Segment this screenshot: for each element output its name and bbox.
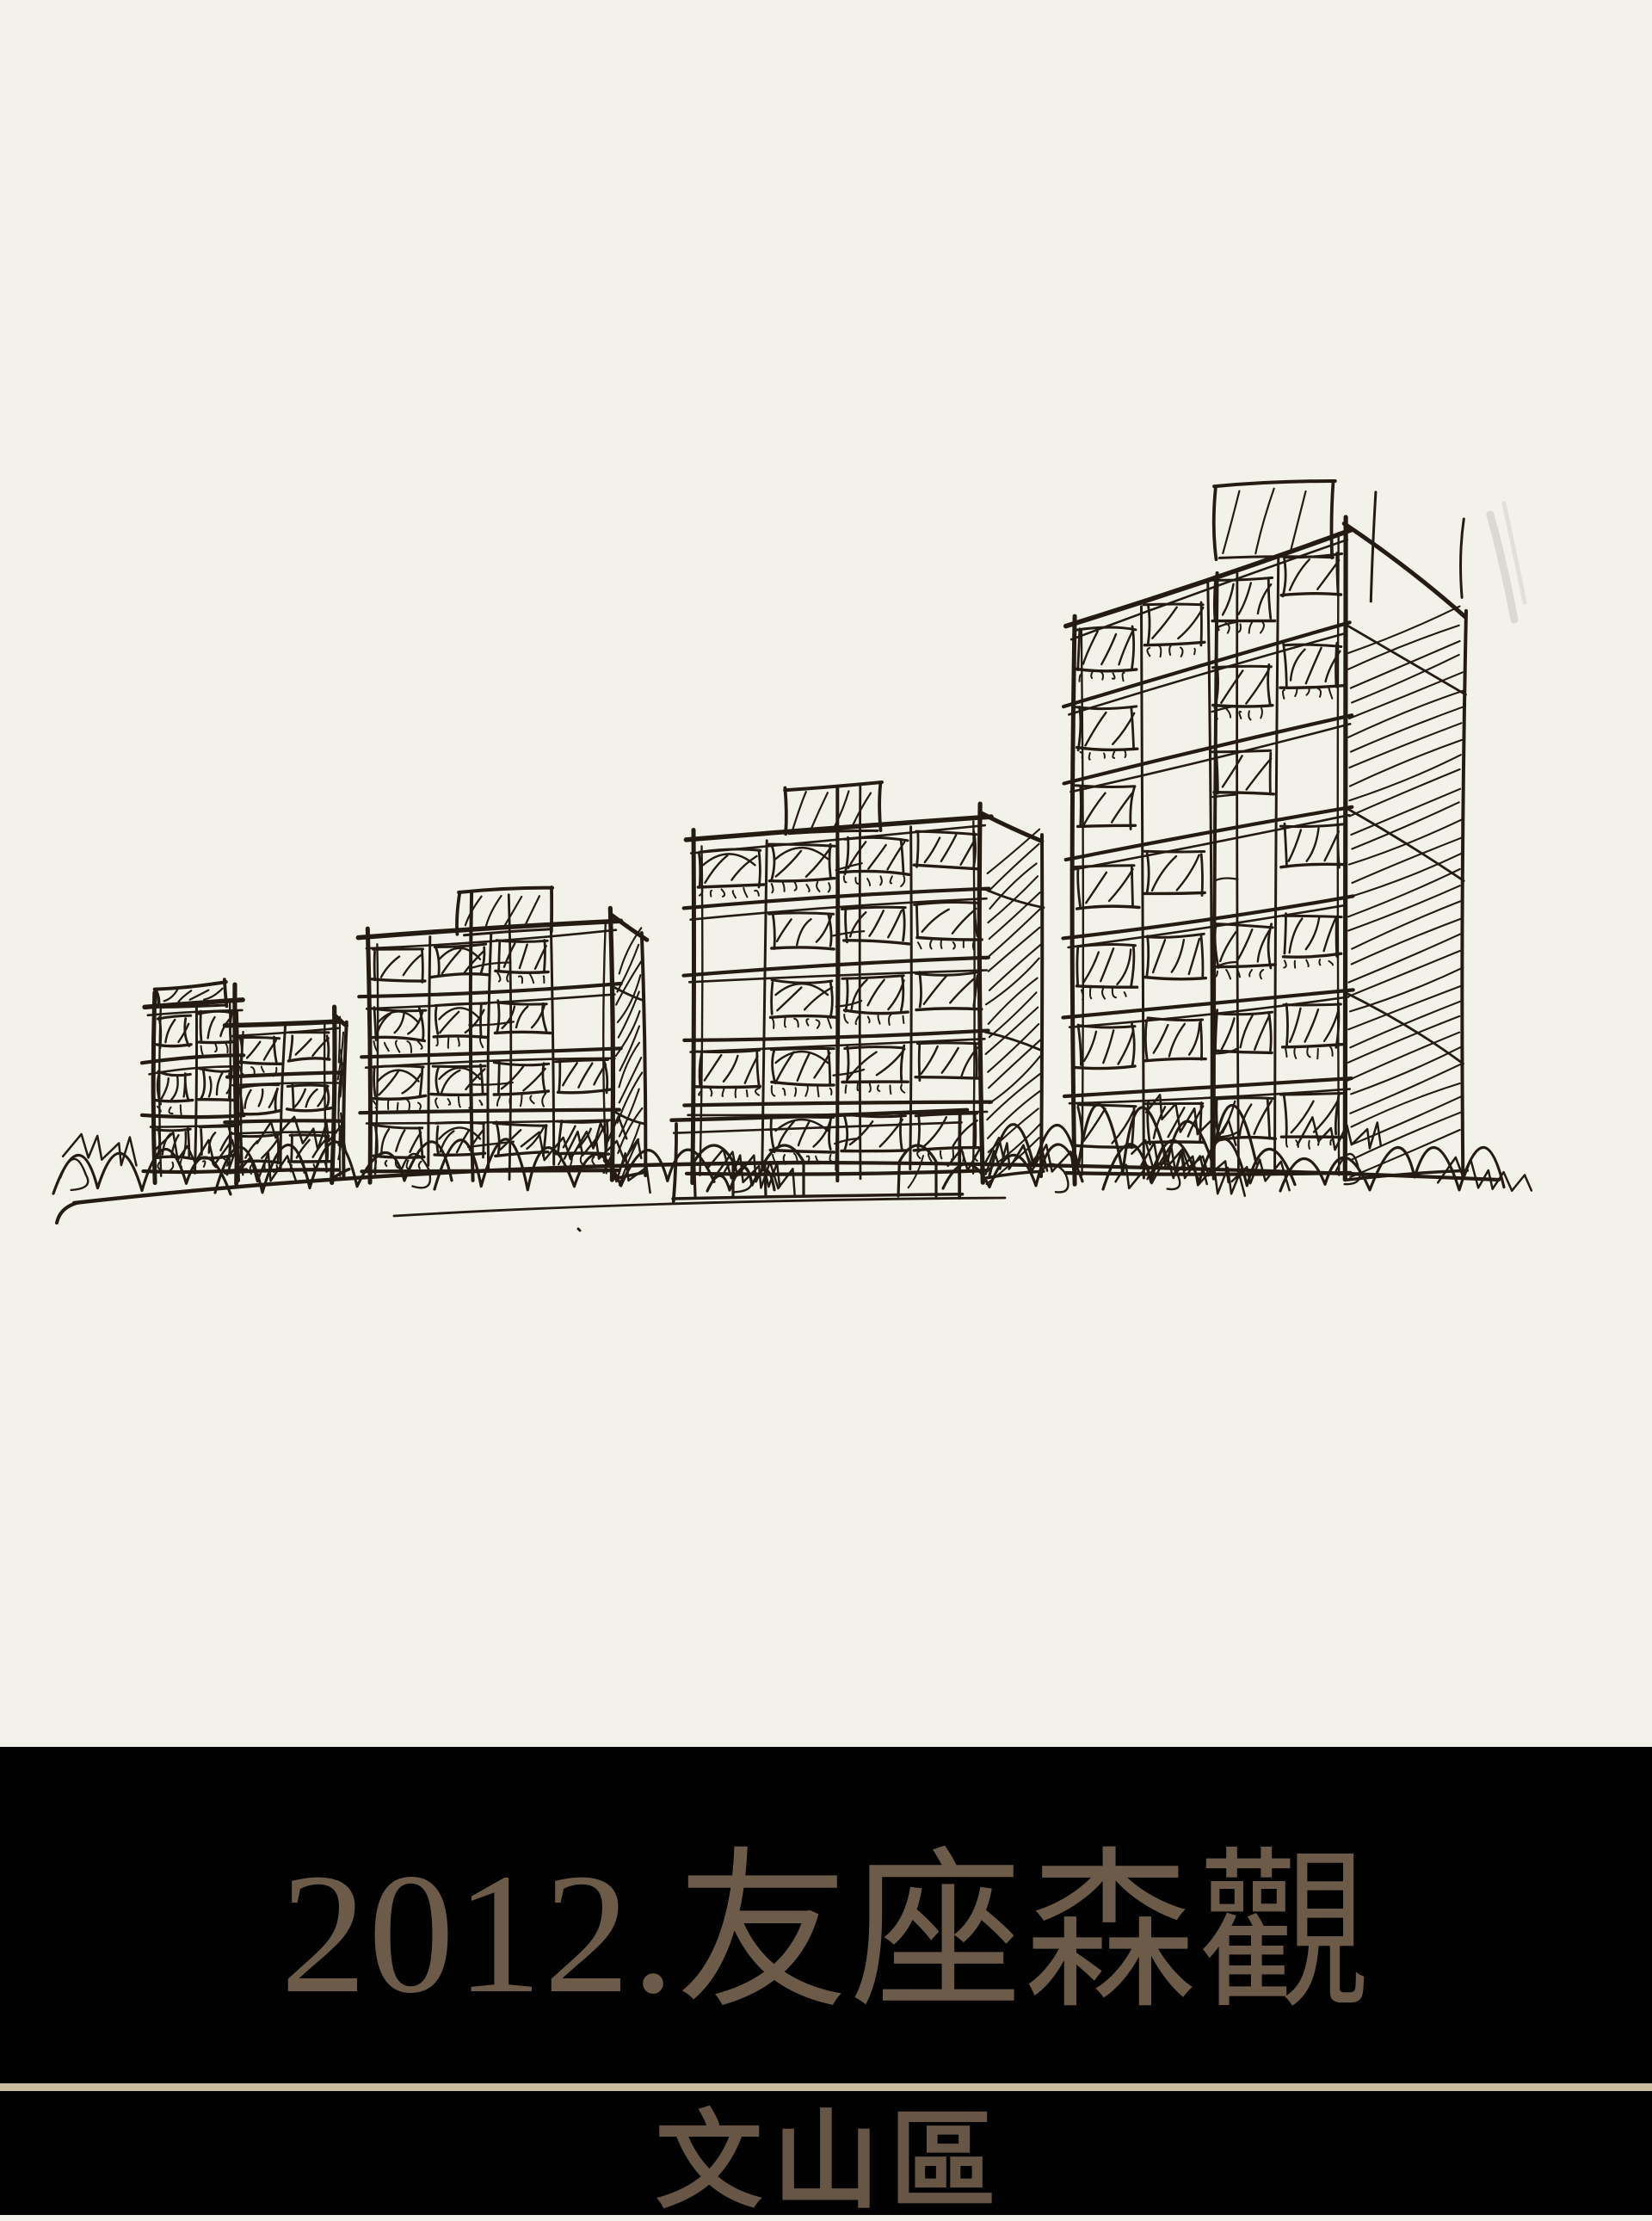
poster-page: 2012.友座森觀 文山區 xyxy=(0,0,1652,2215)
buildings-sketch-illustration xyxy=(0,0,1652,1747)
footer-band: 2012.友座森觀 文山區 xyxy=(0,1747,1652,2215)
rooftop-antennas xyxy=(1371,492,1464,602)
building-4 xyxy=(1063,481,1468,1184)
building-3 xyxy=(684,782,1045,1184)
pencil-smudge xyxy=(1490,503,1525,620)
district-label: 文山區 xyxy=(0,2103,1652,2220)
divider-line xyxy=(0,2083,1652,2091)
project-title: 2012.友座森觀 xyxy=(0,1848,1652,2020)
